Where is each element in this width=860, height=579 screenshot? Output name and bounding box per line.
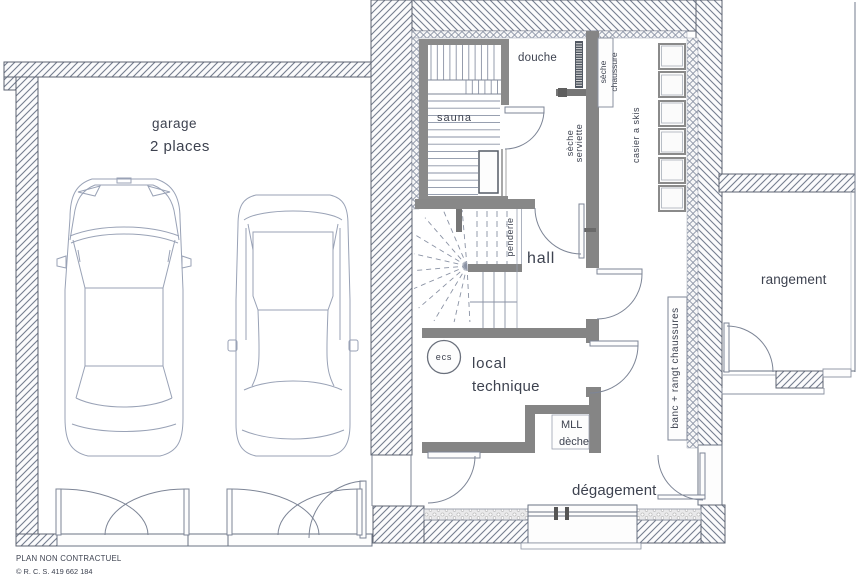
svg-text:douche: douche: [518, 52, 557, 64]
svg-text:casier a skis: casier a skis: [631, 107, 641, 163]
svg-text:MLL: MLL: [561, 419, 582, 431]
svg-text:sèche: sèche: [598, 60, 608, 83]
svg-text:banc + rangt chaussures: banc + rangt chaussures: [670, 307, 681, 428]
svg-text:serviette: serviette: [574, 124, 584, 163]
svg-text:dégagement: dégagement: [572, 482, 657, 499]
svg-text:penderie: penderie: [505, 217, 515, 256]
svg-text:sauna: sauna: [437, 112, 472, 124]
svg-text:local: local: [472, 355, 507, 372]
svg-text:PLAN NON CONTRACTUEL: PLAN NON CONTRACTUEL: [16, 554, 122, 563]
svg-text:rangement: rangement: [761, 272, 827, 287]
svg-text:2 places: 2 places: [150, 138, 210, 155]
svg-text:garage: garage: [152, 116, 197, 131]
svg-text:© R. C. S. 419 662 184: © R. C. S. 419 662 184: [16, 567, 93, 576]
svg-text:technique: technique: [472, 378, 540, 395]
svg-text:ecs: ecs: [436, 352, 452, 362]
svg-text:hall: hall: [527, 250, 555, 267]
svg-text:chaussure: chaussure: [609, 52, 619, 91]
svg-text:dèche: dèche: [559, 436, 589, 448]
